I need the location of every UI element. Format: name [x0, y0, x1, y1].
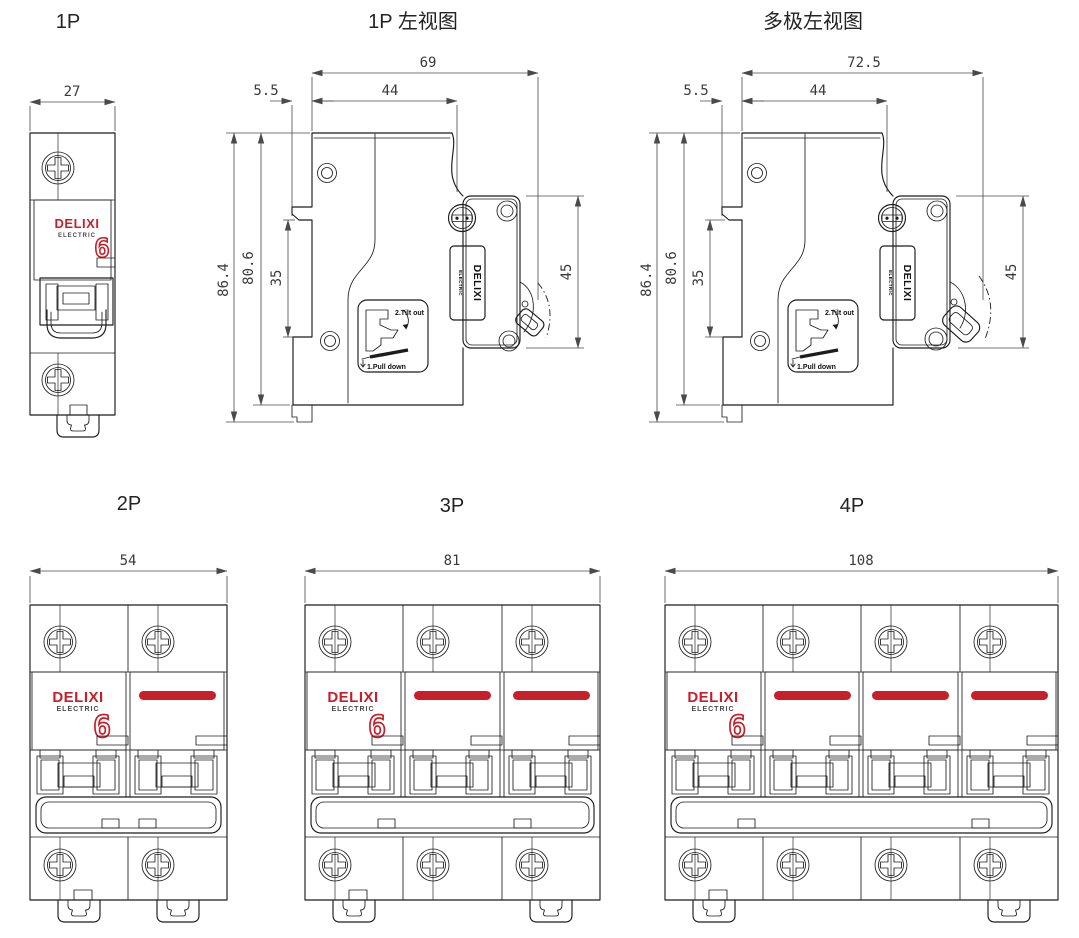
- svg-text:ELECTRIC: ELECTRIC: [458, 270, 463, 296]
- rating-digit: 6: [728, 710, 746, 745]
- toggle-handle: [311, 797, 594, 833]
- front-view-2p: 2P 54 DELIXI ELECTRIC 6: [30, 493, 227, 922]
- dim-width-2p: 54: [30, 553, 227, 603]
- mounting-sticker: 2.Tilt out 1.Pull down: [788, 300, 858, 372]
- dim-overall-depth-1p: 69: [312, 55, 538, 300]
- svg-text:54: 54: [120, 553, 137, 569]
- dim-width-3p: 81: [305, 553, 600, 603]
- brand-sub: ELECTRIC: [58, 233, 96, 239]
- svg-text:44: 44: [382, 83, 399, 99]
- rating-digit: 6: [94, 234, 110, 264]
- brand-logo: DELIXI: [327, 689, 378, 706]
- dim-body-depth-multi: 44: [742, 83, 887, 192]
- brand-logo: DELIXI: [687, 689, 738, 706]
- dim-rail-width-1p: 35: [269, 220, 295, 337]
- title-side-multi: 多极左视图: [763, 10, 863, 33]
- dim-overall-height-1p: 86.4: [216, 133, 310, 422]
- svg-text:80.6: 80.6: [664, 251, 680, 285]
- svg-text:35: 35: [691, 270, 707, 287]
- svg-text:45: 45: [559, 264, 575, 281]
- dim-clip-offset-multi: 5.5: [683, 77, 764, 216]
- pole-red-bar: [414, 691, 491, 700]
- side-brand-label: DELIXI ELECTRIC: [880, 246, 915, 320]
- svg-text:86.4: 86.4: [216, 263, 232, 297]
- dim-label: 27: [64, 84, 81, 100]
- dim-body-depth-1p: 44: [312, 83, 457, 192]
- dim-width-1p: 27: [30, 84, 115, 131]
- front-view-4p: 4P 108 DELIXI ELECTRIC 6: [665, 495, 1058, 922]
- side-brand-label: DELIXI ELECTRIC: [450, 246, 485, 320]
- toggle-handle: [40, 278, 113, 338]
- dim-face-height-1p: 45: [526, 196, 584, 348]
- pole-red-bar: [139, 691, 216, 700]
- toggle-handle: [671, 797, 1052, 833]
- title-front-3p: 3P: [440, 495, 464, 517]
- toggle-lever: [940, 303, 983, 345]
- brand-logo: DELIXI: [52, 689, 103, 706]
- rating-digit: 6: [93, 710, 111, 745]
- sticker-step1-label: 1.Pull down: [367, 364, 406, 371]
- dim-overall-height-multi: 86.4: [639, 133, 740, 422]
- body-outline: [722, 133, 893, 422]
- mounting-sticker: 2.Tilt out 1.Pull down: [358, 300, 428, 372]
- svg-text:DELIXI: DELIXI: [471, 265, 483, 302]
- sticker-step2-label: 2.Tilt out: [395, 310, 425, 317]
- svg-text:80.6: 80.6: [241, 251, 257, 285]
- svg-text:35: 35: [269, 270, 285, 287]
- terminal-face: DELIXI ELECTRIC: [879, 196, 991, 350]
- svg-text:DELIXI: DELIXI: [901, 265, 913, 302]
- breaker-body: [30, 605, 227, 900]
- dim-body-height-1p: 80.6: [241, 133, 290, 405]
- toggle-handle: [36, 797, 221, 833]
- front-view-3p: 3P 81 DELIXI ELECTRIC 6: [305, 495, 600, 922]
- pole-red-bar: [774, 691, 851, 700]
- title-side-1p: 1P 左视图: [368, 10, 458, 33]
- brand-logo: DELIXI: [55, 216, 100, 231]
- pole-red-bar: [872, 691, 949, 700]
- terminal-face: DELIXI ELECTRIC: [449, 196, 551, 351]
- pole-red-bar: [513, 691, 590, 700]
- dim-rail-width-multi: 35: [691, 220, 725, 337]
- front-view-1p: 1P 27 DELIXI ELECTRIC 6: [30, 11, 115, 437]
- pole-red-bar: [971, 691, 1048, 700]
- dim-width-4p: 108: [665, 553, 1058, 603]
- svg-text:86.4: 86.4: [639, 263, 655, 297]
- svg-text:45: 45: [1004, 264, 1020, 281]
- dim-face-height-multi: 45: [956, 196, 1029, 348]
- svg-text:72.5: 72.5: [847, 55, 881, 71]
- drawing-sheet: 1P 27 DELIXI ELECTRIC 6: [0, 0, 1079, 938]
- svg-text:81: 81: [444, 553, 461, 569]
- sticker-step1-label: 1.Pull down: [797, 364, 836, 371]
- svg-text:ELECTRIC: ELECTRIC: [888, 270, 893, 296]
- breaker-dimension-drawing: 1P 27 DELIXI ELECTRIC 6: [0, 0, 1079, 938]
- svg-text:44: 44: [810, 83, 827, 99]
- title-front-1p: 1P: [56, 11, 80, 33]
- title-front-4p: 4P: [840, 495, 864, 517]
- rating-digit: 6: [368, 710, 386, 745]
- sticker-step2-label: 2.Tilt out: [825, 310, 855, 317]
- side-view-multi: 多极左视图 72.5 5.5 44 86.4 80.6: [639, 10, 1029, 422]
- side-view-1p: 1P 左视图 69 5.5 44 86.4 80.6: [216, 10, 584, 422]
- dim-clip-offset-1p: 5.5: [253, 77, 334, 216]
- title-front-2p: 2P: [117, 493, 141, 515]
- svg-text:69: 69: [420, 55, 437, 71]
- dim-body-height-multi: 80.6: [664, 133, 720, 405]
- body-outline: [292, 133, 463, 422]
- svg-text:5.5: 5.5: [683, 83, 708, 99]
- svg-text:5.5: 5.5: [253, 83, 278, 99]
- svg-text:108: 108: [848, 553, 873, 569]
- breaker-body: [665, 605, 1058, 900]
